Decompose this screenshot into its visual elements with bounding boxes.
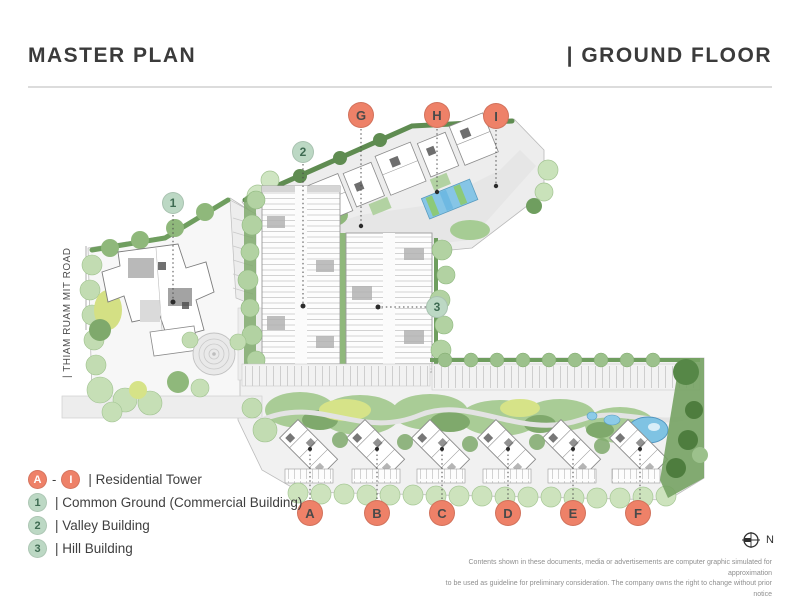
- legend-badge-i: I: [61, 470, 80, 489]
- disclaimer: Contents shown in these documents, media…: [427, 558, 772, 600]
- tower-marker-h: H: [424, 102, 450, 128]
- legend-label-valley: | Valley Building: [55, 518, 150, 533]
- legend-label-residential: | Residential Tower: [88, 472, 202, 487]
- legend-row-valley: 2 | Valley Building: [28, 514, 302, 537]
- legend-badge-a: A: [28, 470, 47, 489]
- tower-marker-i: I: [483, 103, 509, 129]
- legend-row-hill: 3 | Hill Building: [28, 537, 302, 560]
- tower-marker-g: G: [348, 102, 374, 128]
- disclaimer-line-1: Contents shown in these documents, media…: [427, 558, 772, 579]
- north-arrow-icon: [740, 529, 764, 551]
- road-label: | THIAM RUAM MIT ROAD: [62, 228, 73, 378]
- tower-marker-e: E: [560, 500, 586, 526]
- compass-label: N: [766, 534, 774, 546]
- legend-badge-2: 2: [28, 516, 47, 535]
- valley-building: [238, 186, 340, 372]
- legend-badge-1: 1: [28, 493, 47, 512]
- tower-marker-f: F: [625, 500, 651, 526]
- facility-marker-2: 2: [292, 141, 314, 163]
- tower-marker-c: C: [429, 500, 455, 526]
- legend-separator: -: [52, 472, 56, 487]
- legend-row-residential: A - I | Residential Tower: [28, 468, 302, 491]
- legend: A - I | Residential Tower 1 | Common Gro…: [28, 468, 302, 560]
- tower-marker-d: D: [495, 500, 521, 526]
- compass: N: [740, 529, 774, 551]
- tower-marker-b: B: [364, 500, 390, 526]
- legend-row-common-ground: 1 | Common Ground (Commercial Building): [28, 491, 302, 514]
- legend-label-hill: | Hill Building: [55, 541, 133, 556]
- facility-marker-3: 3: [426, 296, 448, 318]
- disclaimer-line-2: to be used as guideline for preliminary …: [427, 579, 772, 600]
- legend-badge-3: 3: [28, 539, 47, 558]
- facility-marker-1: 1: [162, 192, 184, 214]
- legend-label-common-ground: | Common Ground (Commercial Building): [55, 495, 302, 510]
